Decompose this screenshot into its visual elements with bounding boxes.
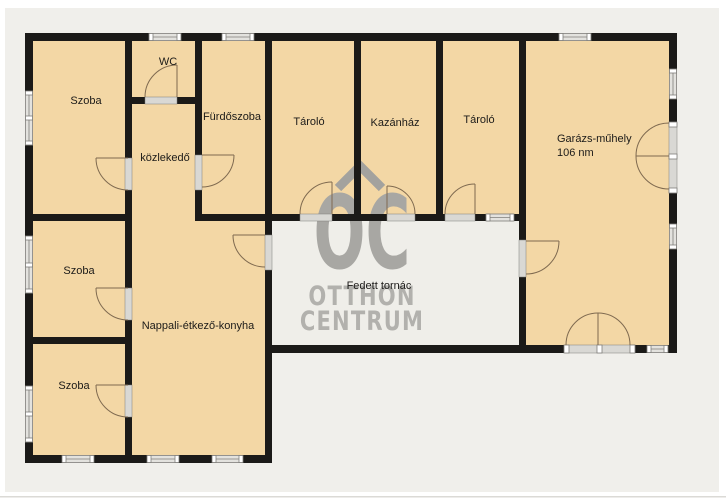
watermark-initials: OC (314, 173, 411, 292)
window (147, 456, 179, 463)
window (670, 224, 677, 249)
wall-segment (25, 344, 33, 387)
wall-segment (253, 33, 560, 41)
wall-segment (180, 33, 223, 41)
room-szoba-2-floor (33, 221, 125, 337)
room-wc-floor (132, 41, 195, 97)
wall-segment (25, 33, 150, 41)
window (486, 214, 514, 221)
window (26, 236, 33, 293)
wall-segment (177, 97, 202, 104)
room-area-garazs: 106 nm (557, 147, 594, 159)
wall-segment (25, 455, 63, 463)
wall-segment (354, 41, 361, 214)
window (647, 346, 668, 353)
door-sill-tornac-garazs (519, 240, 526, 277)
wall-segment (590, 33, 677, 41)
door-sill-garazs-double-bottom (564, 345, 635, 353)
wall-segment (25, 33, 33, 92)
room-label-furdoszoba: Fürdőszoba (203, 111, 262, 123)
door-sill-nappali-tornac (265, 235, 272, 270)
room-label-kozlekedo: közlekedő (140, 152, 190, 164)
wall-segment (436, 41, 443, 214)
wall-segment (272, 214, 300, 221)
window (222, 34, 254, 41)
room-nappali-floor (132, 221, 265, 455)
wall-segment (125, 417, 132, 455)
wall-segment (25, 214, 132, 221)
wall-segment (519, 277, 526, 345)
room-label-szoba-3: Szoba (58, 380, 90, 392)
wall-segment (635, 345, 648, 353)
door-sill-tarolo-2 (445, 214, 475, 221)
door-sill-furdoszoba (195, 155, 202, 190)
wall-segment (669, 248, 677, 353)
door-sill-wc (145, 97, 177, 104)
wall-segment (667, 345, 677, 353)
wall-segment (513, 214, 526, 221)
window (670, 69, 677, 99)
wall-segment (125, 41, 132, 158)
wall-segment (669, 193, 677, 225)
wall-segment (25, 221, 33, 237)
room-label-wc: WC (159, 56, 177, 68)
room-label-szoba-1: Szoba (70, 95, 102, 107)
room-label-fedett-tornac: Fedett tornác (347, 280, 412, 292)
door-sill-garazs-double-right (669, 122, 677, 193)
door-sill-szoba-3 (125, 385, 132, 417)
wall-segment (415, 214, 445, 221)
room-szoba-3-floor (33, 344, 125, 455)
room-label-nappali: Nappali-étkező-konyha (142, 320, 255, 332)
floorplan-canvas: OC OTTHON CENTRUM (0, 0, 726, 500)
room-szoba-1-floor (33, 41, 125, 214)
wall-segment (25, 337, 132, 344)
room-tarolo-2-floor (443, 41, 519, 214)
wall-segment (669, 33, 677, 70)
door-sill-szoba-2 (125, 288, 132, 320)
window (149, 34, 181, 41)
room-label-kazanhaz: Kazánház (371, 117, 420, 129)
wall-segment (132, 97, 145, 104)
wall-segment (669, 98, 677, 123)
window (26, 91, 33, 145)
room-furdoszoba-floor (202, 41, 265, 214)
wall-segment (195, 214, 272, 221)
wall-segment (25, 145, 33, 214)
wall-segment (265, 41, 272, 235)
door-sill-tarolo-1 (300, 214, 332, 221)
room-garazs-floor (526, 41, 669, 345)
wall-segment (195, 190, 202, 214)
door-sill-kazanhaz (387, 214, 415, 221)
watermark: OC OTTHON CENTRUM (300, 166, 424, 337)
wall-segment (125, 320, 132, 385)
window (26, 386, 33, 442)
wall-segment (265, 345, 565, 353)
room-label-tarolo-1: Tároló (293, 116, 324, 128)
wall-segment (93, 455, 148, 463)
window (559, 34, 591, 41)
wall-segment (265, 270, 272, 345)
window (62, 456, 94, 463)
room-label-garazs: Garázs-műhely (557, 133, 632, 145)
wall-segment (332, 214, 387, 221)
watermark-brand-line2: CENTRUM (300, 305, 424, 336)
wall-segment (25, 293, 33, 337)
window (212, 456, 243, 463)
room-label-tarolo-2: Tároló (463, 114, 494, 126)
page-edge-line (0, 496, 726, 498)
wall-segment (178, 455, 213, 463)
wall-segment (242, 455, 272, 463)
door-sill-szoba-1 (125, 158, 132, 190)
wall-segment (475, 214, 487, 221)
wall-segment (265, 353, 272, 455)
room-label-szoba-2: Szoba (63, 265, 95, 277)
wall-segment (519, 41, 526, 240)
wall-segment (125, 190, 132, 288)
